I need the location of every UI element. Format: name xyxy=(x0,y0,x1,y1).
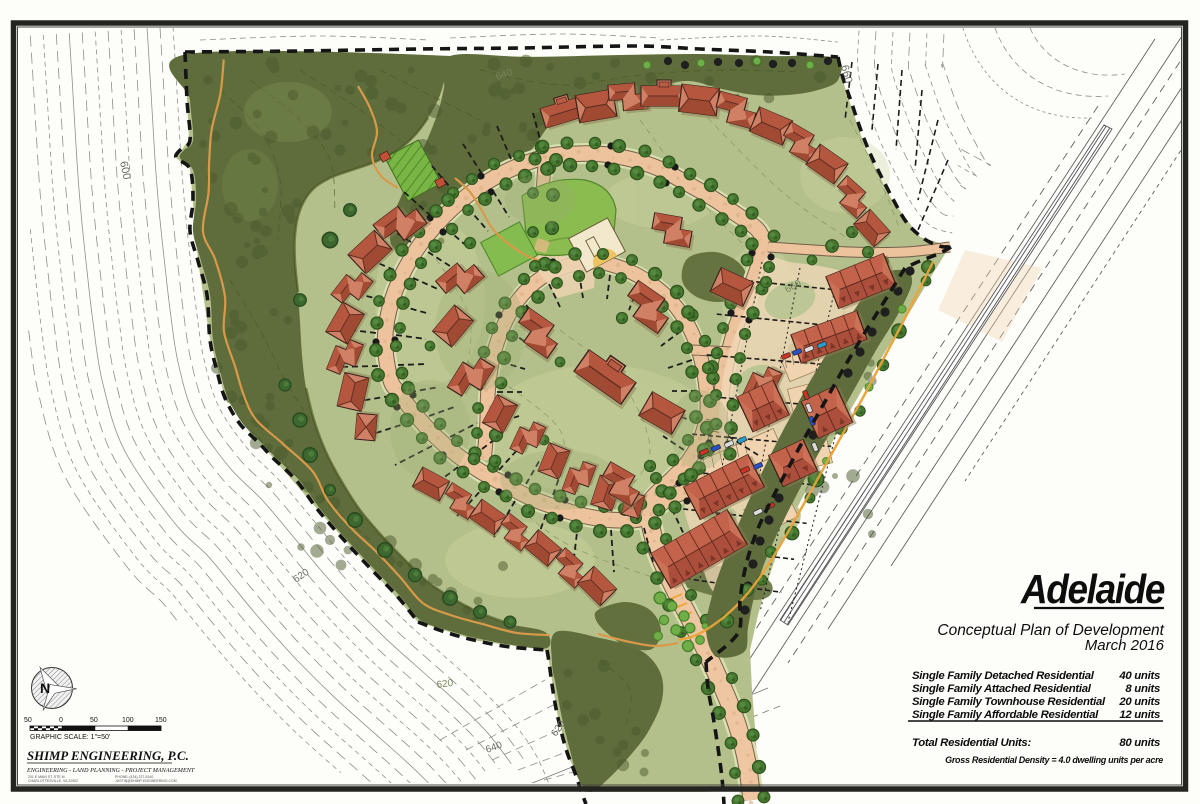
svg-text:50: 50 xyxy=(90,717,98,724)
svg-text:100: 100 xyxy=(122,717,134,724)
svg-text:8 units: 8 units xyxy=(1125,683,1160,695)
svg-text:CHARLOTTESVILLE, VA 22902: CHARLOTTESVILLE, VA 22902 xyxy=(28,779,78,783)
svg-text:ENGINEERING - LAND PLANNING -: ENGINEERING - LAND PLANNING - PROJECT MA… xyxy=(26,767,195,774)
svg-text:80 units: 80 units xyxy=(1119,737,1160,749)
svg-text:GRAPHIC SCALE: 1"=50': GRAPHIC SCALE: 1"=50' xyxy=(30,734,110,741)
svg-text:March 2016: March 2016 xyxy=(1085,637,1165,654)
svg-text:Single Family Attached Residen: Single Family Attached Residential xyxy=(912,683,1092,695)
svg-text:Single Family Affordable Resid: Single Family Affordable Residential xyxy=(912,709,1099,721)
svg-text:Total Residential Units:: Total Residential Units: xyxy=(912,737,1031,749)
svg-text:SHIMP ENGINEERING, P.C.: SHIMP ENGINEERING, P.C. xyxy=(27,749,189,763)
svg-text:Gross Residential Density = 4.: Gross Residential Density = 4.0 dwelling… xyxy=(945,755,1163,765)
svg-text:50: 50 xyxy=(24,717,32,724)
svg-text:Single Family Detached Residen: Single Family Detached Residential xyxy=(912,670,1095,682)
svg-text:Single Family Townhouse Reside: Single Family Townhouse Residential xyxy=(912,696,1106,708)
svg-text:150: 150 xyxy=(155,717,167,724)
svg-text:0: 0 xyxy=(59,717,63,724)
svg-text:20 units: 20 units xyxy=(1118,696,1160,708)
svg-text:Adelaide: Adelaide xyxy=(1020,567,1165,612)
svg-text:JUSTIN@SHIMP-ENGINEERING.COM: JUSTIN@SHIMP-ENGINEERING.COM xyxy=(115,779,177,783)
svg-text:40 units: 40 units xyxy=(1118,670,1160,682)
svg-text:N: N xyxy=(40,680,50,696)
svg-text:12 units: 12 units xyxy=(1119,709,1160,721)
